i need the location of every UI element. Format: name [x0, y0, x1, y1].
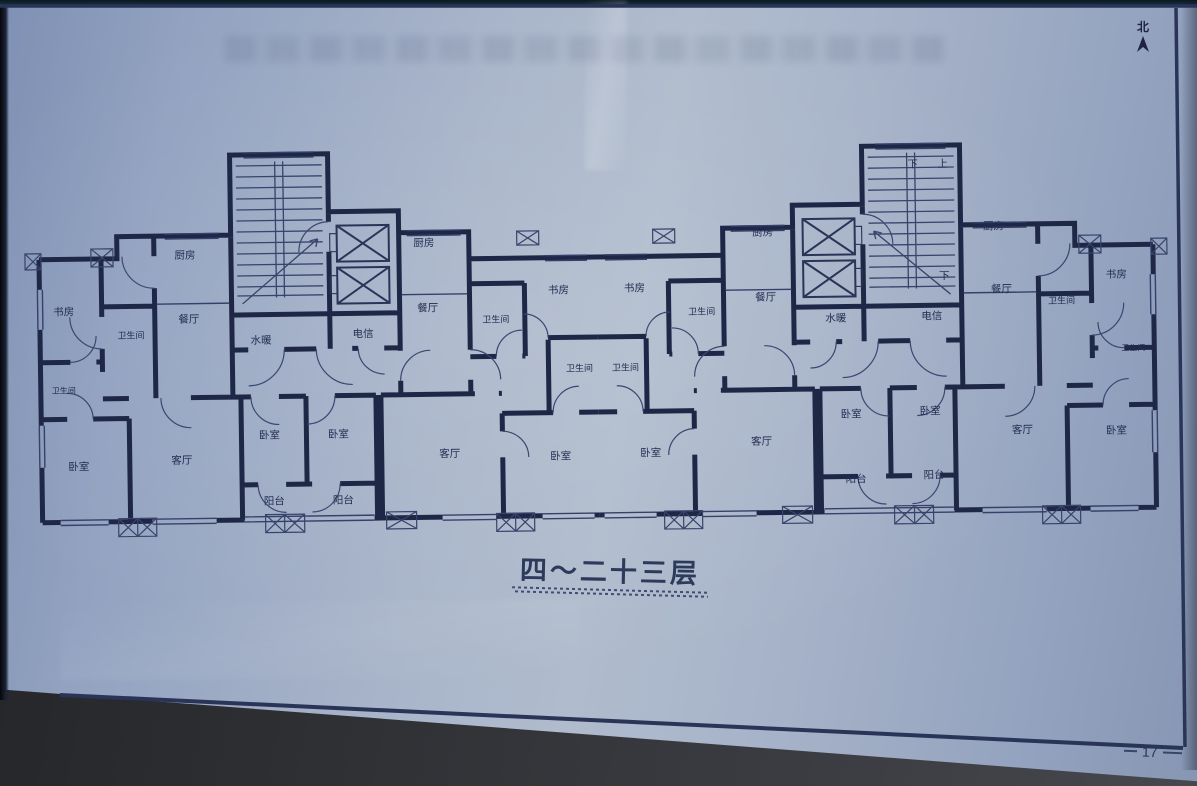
room-label: 客厅	[751, 435, 772, 448]
room-label: 客厅	[1012, 423, 1033, 436]
room-label: 阳台	[846, 472, 867, 485]
room-label: 水暖	[825, 312, 847, 325]
room-label: 书房	[53, 305, 74, 318]
room-label: 电信	[921, 309, 942, 322]
building-right-half	[594, 140, 1170, 530]
room-label: 卫生间	[117, 329, 144, 340]
room-label: 卧室	[920, 404, 941, 417]
staircase	[236, 161, 324, 304]
room-label: 厨房	[413, 236, 434, 249]
room-label: 卧室	[640, 446, 661, 459]
room-label: 下	[907, 159, 918, 171]
room-label: 卧室	[68, 460, 89, 473]
room-label: 下	[939, 270, 950, 282]
page-number-dash	[1163, 751, 1182, 754]
floor-plan-drawing: 书房 卫生间 厨房 餐厅 卫生间 卧室 客厅 卧室 卧室 阳台 阳台 水暖 电信…	[0, 0, 1197, 786]
room-label: 阳台	[333, 493, 354, 506]
room-label: 上	[937, 158, 948, 170]
page-number: 17	[1124, 743, 1182, 761]
north-arrow: 北	[1137, 19, 1149, 52]
room-label: 厨房	[174, 249, 195, 262]
room-label: 电信	[352, 327, 373, 340]
room-label: 水暖	[251, 334, 273, 347]
room-label: 餐厅	[178, 313, 199, 326]
building-left-half	[24, 148, 600, 538]
room-label: 厨房	[752, 226, 773, 239]
elevator-shafts	[330, 225, 390, 304]
room-label: 阳台	[923, 468, 944, 481]
room-label: 餐厅	[991, 282, 1012, 295]
floor-range-caption: 四～二十三层	[498, 548, 723, 592]
room-label: 卫生间	[1048, 294, 1075, 305]
room-label: 卫生间	[566, 362, 593, 373]
room-label: 客厅	[171, 454, 192, 467]
page-border-frame	[0, 6, 1197, 748]
room-label: 卫生间	[52, 385, 76, 395]
north-label: 北	[1137, 19, 1149, 34]
north-arrow-icon	[1137, 36, 1149, 52]
room-label: 客厅	[439, 447, 460, 460]
room-label: 卫生间	[1121, 342, 1145, 352]
page-number-value: 17	[1142, 744, 1158, 761]
room-label: 卧室	[259, 428, 280, 441]
room-label: 卧室	[550, 449, 571, 462]
room-label: 卫生间	[482, 313, 509, 324]
room-label: 卫生间	[612, 361, 639, 372]
room-label: 餐厅	[755, 290, 776, 303]
room-label: 厨房	[983, 219, 1004, 232]
room-label: 卧室	[328, 427, 349, 440]
room-label: 卧室	[1106, 424, 1127, 437]
room-label: 餐厅	[417, 301, 438, 314]
room-label: 卧室	[841, 407, 862, 420]
photo-stage: 书房 卫生间 厨房 餐厅 卫生间 卧室 客厅 卧室 卧室 阳台 阳台 水暖 电信…	[0, 0, 1197, 786]
room-label: 阳台	[264, 494, 285, 507]
room-label: 书房	[548, 283, 569, 296]
room-labels: 书房 卫生间 厨房 餐厅 卫生间 卧室 客厅 卧室 卧室 阳台 阳台 水暖 电信…	[49, 155, 1148, 510]
page-number-dash	[1124, 750, 1137, 753]
room-label: 卫生间	[688, 305, 715, 316]
room-label: 书房	[624, 281, 645, 294]
room-label: 书房	[1106, 268, 1127, 281]
